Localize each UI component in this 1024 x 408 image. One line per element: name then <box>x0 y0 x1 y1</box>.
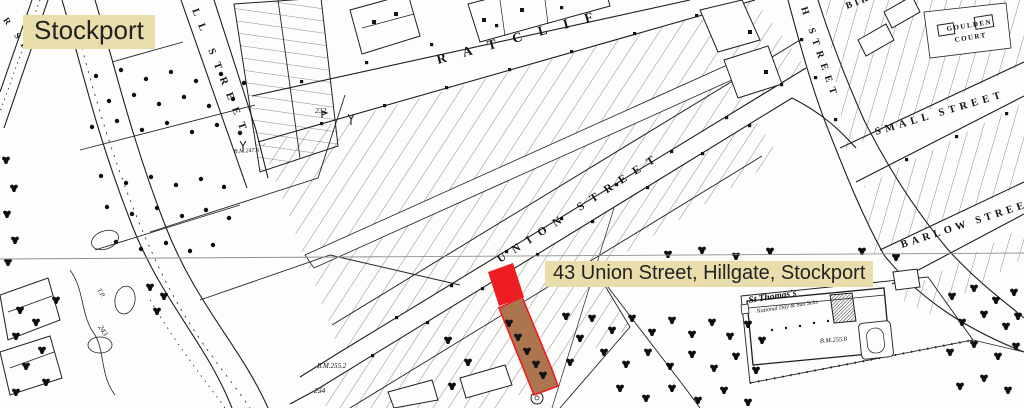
map-canvas: RATCLIF UNION STREET LL STREET SMALL STR… <box>0 0 1024 408</box>
spot-254-label: 254 <box>314 386 326 395</box>
spot-232-label: 232 <box>315 106 327 115</box>
tp-label: T.P. <box>95 287 106 299</box>
map-screenshot: RATCLIF UNION STREET LL STREET SMALL STR… <box>0 0 1024 408</box>
corner-title-label: Stockport <box>23 15 155 49</box>
spot-243-label: 243 <box>96 323 110 338</box>
address-annotation-label: 43 Union Street, Hillgate, Stockport <box>545 261 873 287</box>
terraced-housing-blocks <box>234 0 1024 408</box>
orchard-dot-trees <box>90 68 246 253</box>
bm-ratcliffe-label: B.M.247.6 <box>234 147 260 155</box>
ornamental-garden <box>70 227 137 395</box>
bm-union-label: B.M.255.2 <box>317 362 347 370</box>
